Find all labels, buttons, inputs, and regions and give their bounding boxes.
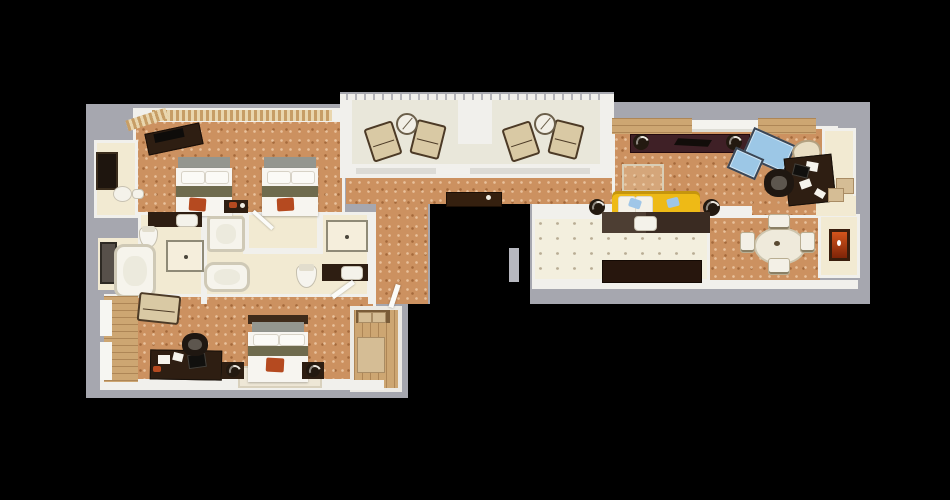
balcony-door-right [470, 168, 590, 174]
bath2-bathtub [204, 262, 250, 292]
twin-bed-2-runner [262, 186, 318, 197]
twin-bedroom-window-blinds [152, 110, 332, 121]
dining-chair-right [800, 232, 815, 253]
dining-table-centerpiece [774, 241, 780, 246]
dining-chair-left [740, 232, 755, 253]
hall-console-dish [486, 195, 491, 200]
balcony-door-left [356, 168, 436, 174]
balcony-railing [346, 94, 604, 100]
dining-chair-bottom [768, 258, 790, 275]
master-bed-pillow-a [253, 334, 279, 346]
desk-paper-1 [158, 355, 170, 364]
bath-wall-3 [243, 248, 323, 254]
hall-console-table [446, 192, 502, 207]
twin-bed-2-pillow-b [291, 171, 315, 184]
twin-bed-1-pillow-b [205, 171, 229, 184]
hallway-floor-side [376, 204, 428, 304]
speaker-left [226, 363, 240, 377]
twin-bed-2-pillow-a [267, 171, 291, 184]
kitchen-credenza [602, 260, 702, 283]
master-bed-runner [248, 346, 308, 356]
bath2-shower-tray [207, 216, 245, 252]
living-top-wall-wood-left [612, 118, 692, 134]
living-top-window [692, 120, 758, 132]
master-window-1 [100, 300, 112, 336]
bath1-sink [176, 214, 198, 227]
speaker-right [306, 363, 320, 377]
alcove-sink [113, 186, 132, 202]
nightstand-dish [240, 203, 245, 208]
balcony-table-2 [534, 113, 556, 135]
shaft-door [509, 248, 519, 282]
alcove-kettle [132, 189, 144, 199]
office-chair [764, 169, 794, 197]
twin-bed-1-runner [176, 186, 232, 197]
chaise-lounge [137, 292, 182, 325]
dining-chair-top [768, 214, 790, 230]
bath1-shower [166, 240, 204, 272]
minibar-cabinet [96, 152, 118, 190]
desk-red-item [153, 366, 161, 372]
bath1-bathtub [114, 244, 156, 298]
bath-hall-wall [368, 212, 376, 304]
floorplan-stage [0, 0, 950, 500]
foyer-shelf-box-1 [358, 312, 372, 323]
fireplace [829, 229, 850, 261]
bath3-shower [326, 220, 368, 252]
foyer-luggage-box [357, 337, 385, 373]
twin-bed-1-pillow-a [181, 171, 205, 184]
bath3-sink [341, 266, 363, 280]
closet-storage-box-2 [828, 188, 844, 202]
balcony-divider [458, 94, 492, 144]
nightstand-red-item [229, 202, 237, 208]
bath-wall-4 [317, 212, 323, 254]
master-desk-chair [182, 333, 208, 356]
living-speaker-left [633, 134, 649, 150]
master-window-2 [100, 342, 112, 380]
balcony-table-1 [396, 113, 418, 135]
red-ottoman-2 [277, 198, 295, 212]
foyer-shelf-box-2 [372, 312, 386, 323]
kitchen-sink [634, 216, 657, 231]
master-red-bench [266, 358, 285, 373]
master-bed-pillow-b [279, 334, 305, 346]
red-ottoman-1 [189, 197, 207, 211]
living-rug [622, 164, 664, 192]
